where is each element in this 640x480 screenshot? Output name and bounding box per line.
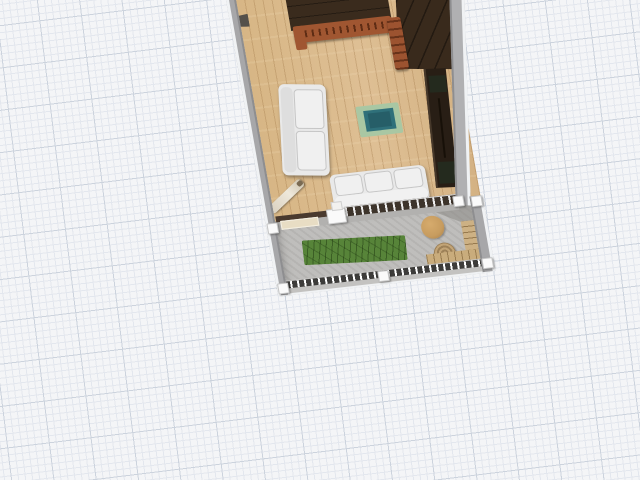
corner-handle[interactable] — [266, 222, 279, 234]
balcony-door-leaf[interactable] — [331, 201, 343, 211]
sofa-left[interactable] — [278, 84, 330, 176]
area-rug[interactable] — [355, 102, 403, 137]
corner-handle[interactable] — [277, 282, 290, 294]
floorplan-canvas — [0, 0, 640, 480]
coffee-table-top — [368, 111, 392, 128]
corner-handle[interactable] — [481, 257, 494, 269]
wardrobe-accent — [428, 75, 447, 93]
corner-handle[interactable] — [470, 195, 483, 207]
wardrobe-seam — [438, 98, 446, 158]
sofa-cushion — [296, 131, 327, 171]
corner-handle[interactable] — [452, 195, 465, 207]
sofa-cushion — [293, 89, 324, 129]
corner-handle[interactable] — [377, 270, 390, 282]
